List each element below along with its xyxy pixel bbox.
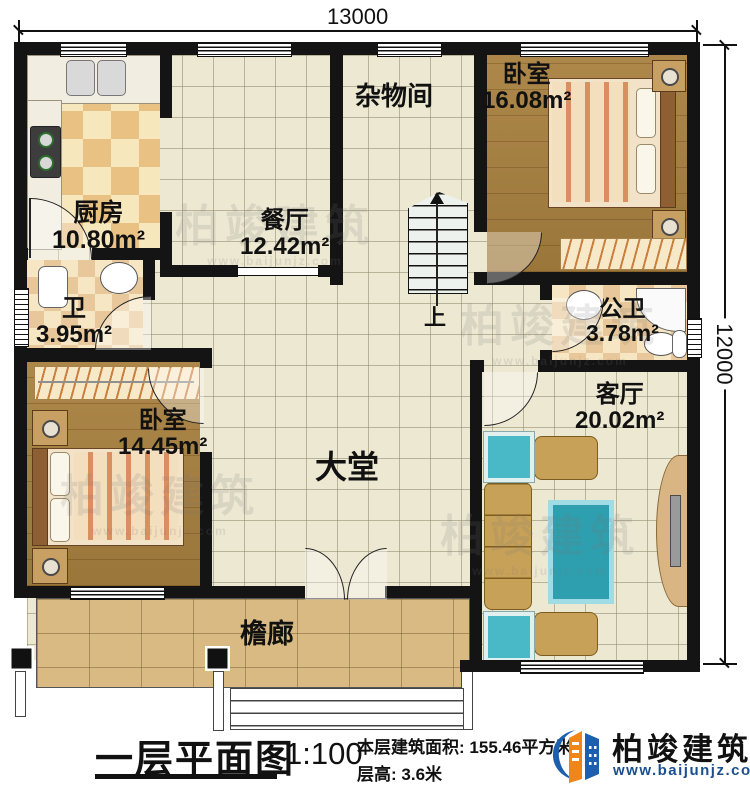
bedroom-left-area: 14.45m² [118,434,207,460]
floor-plan-sheet: 上 厨房 10.80m² 餐厅 12.42m² [0,0,750,798]
label-porch: 檐廊 [240,620,294,649]
label-hall: 大堂 [315,450,379,485]
wall-public-bath-left-a [540,285,552,300]
living-armchair-top [534,436,598,480]
dim-height-label: 12000 [711,318,737,389]
porch-column-left [9,646,34,671]
living-area: 20.02m² [575,408,664,434]
porch-name: 檐廊 [240,620,294,649]
stove-burner-1 [38,132,54,148]
bedroom-left-nightstand-1 [32,410,68,446]
living-side-table-top [484,432,534,482]
public-bath-name: 公卫 [586,296,659,321]
dim-line-top [18,30,697,32]
bedroom-top-headboard [660,78,676,208]
door-kitchen-leaf [29,198,31,258]
plan-scale: 1:100 [285,736,363,772]
bedroom-top-nightstand-1 [652,60,686,92]
dining-area: 12.42m² [240,234,329,260]
wall-bedroom-left-right-a [200,348,212,368]
label-dining: 餐厅 12.42m² [240,208,329,260]
wall-public-bath-left-b [540,350,552,360]
label-living: 客厅 20.02m² [575,382,664,434]
wall-bath-right [143,260,155,300]
bath-area: 3.95m² [36,322,112,348]
wall-kitchen-dining-top [160,55,172,118]
window-storage [377,42,442,57]
dim-ext-right-top [703,44,737,46]
bedroom-left-name: 卧室 [118,408,207,434]
window-bath [14,288,29,347]
label-public-bath: 公卫 3.78m² [586,296,659,346]
bedroom-left-pillow-2 [50,498,70,542]
bath-sink [100,262,138,294]
label-bedroom-top: 卧室 16.08m² [482,62,571,114]
plan-area-line: 本层建筑面积: 155.46平方米 [357,733,572,758]
dim-width-label: 13000 [322,4,393,30]
stove-burner-2 [38,155,54,171]
bedroom-left-blanket [74,452,178,540]
stair-arrow-line [436,202,438,306]
living-name: 客厅 [575,382,664,408]
wall-living-left [470,372,482,672]
window-public-bath [687,318,702,358]
living-coffee-table [548,500,614,604]
kitchen-stove [30,126,61,178]
window-bedroom-left [70,586,165,600]
staircase [408,192,468,294]
porch-column-mid [205,646,230,671]
plan-floor-height-line: 层高: 3.6米 [357,760,442,785]
label-storage: 杂物间 [355,82,433,110]
dim-ext-right-bottom [703,663,737,665]
brand-logo-icon [552,722,606,786]
brand-website: www.baijunjz.com [613,762,750,779]
bedroom-left-pillow-1 [50,452,70,496]
bedroom-top-name: 卧室 [482,62,571,88]
storage-name: 杂物间 [355,82,433,110]
wall-bath-bottom [14,348,212,362]
wall-kitchen-bottom-a [14,248,28,260]
building-logo-icon [552,722,606,786]
label-bedroom-left: 卧室 14.45m² [118,408,207,460]
public-bath-toilet-tank [672,330,687,358]
entry-steps [230,688,464,730]
kitchen-sink-bowl-2 [97,60,126,96]
wall-living-top-a [470,360,484,372]
wall-bedroom-left-right-b [200,452,212,586]
plan-title-underline [95,774,277,779]
wall-kitchen-dining-bottom [160,212,172,265]
bedroom-top-pillow-1 [636,88,656,138]
window-bedroom-top [520,42,649,57]
kitchen-sink-bowl-1 [66,60,95,96]
living-sofa [484,482,532,610]
bedroom-top-wardrobe [560,238,687,270]
kitchen-area: 10.80m² [52,227,145,254]
plan-floor-height-label: 层高: [357,765,397,784]
window-dining [197,42,292,57]
label-bath: 卫 3.95m² [36,296,112,348]
porch-post-mid [213,671,224,731]
bath-name: 卫 [36,296,112,322]
bedroom-top-pillow-2 [636,144,656,194]
wall-dining-bottom-a [160,265,238,277]
bedroom-top-area: 16.08m² [482,88,571,114]
bedroom-left-headboard [32,448,48,546]
plan-area-label: 本层建筑面积: [357,738,465,757]
plan-floor-height-value: 3.6米 [401,765,442,784]
wall-storage-left [330,55,343,285]
label-kitchen: 厨房 10.80m² [52,200,145,254]
window-kitchen [60,42,127,57]
living-tv [670,495,681,567]
porch-post-left [15,671,26,717]
window-living [520,660,644,674]
hall-name: 大堂 [315,450,379,485]
living-armchair-bottom [534,612,598,656]
stair-up-label: 上 [424,306,446,330]
wall-hall-bottom-right [385,586,482,598]
dining-name: 餐厅 [240,208,329,234]
public-bath-area: 3.78m² [586,321,659,346]
living-side-table-bottom [484,612,534,662]
wall-living-top-b [538,360,687,372]
kitchen-name: 厨房 [52,200,145,227]
stair-arrow-head [430,192,444,204]
bedroom-left-nightstand-2 [32,548,68,584]
sliding-door-dining-hall [238,267,318,276]
